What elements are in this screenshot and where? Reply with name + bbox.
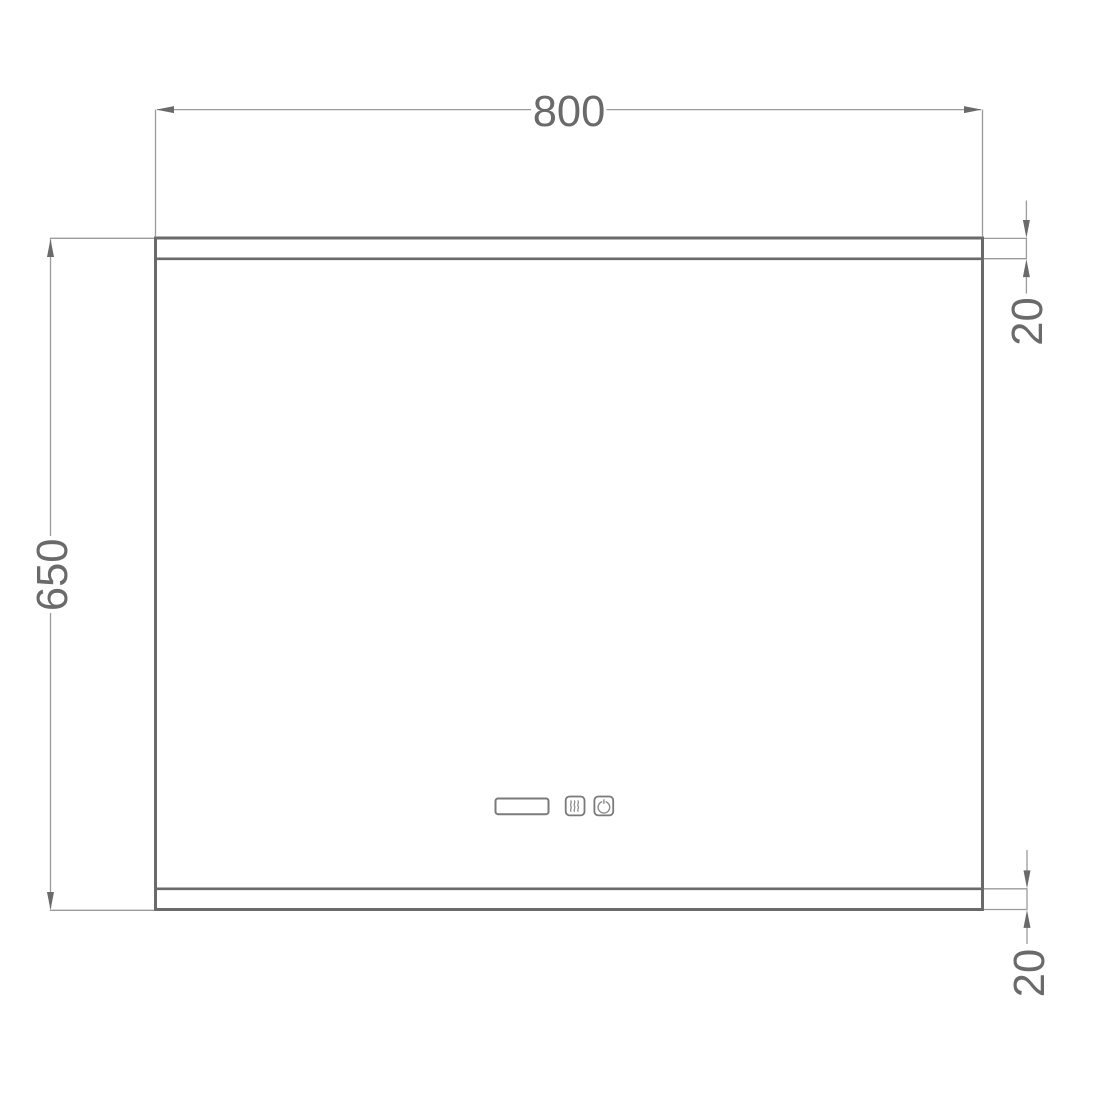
svg-text:20: 20: [1004, 297, 1052, 345]
svg-text:650: 650: [29, 539, 77, 612]
svg-text:20: 20: [1006, 949, 1054, 997]
svg-text:800: 800: [533, 88, 606, 136]
